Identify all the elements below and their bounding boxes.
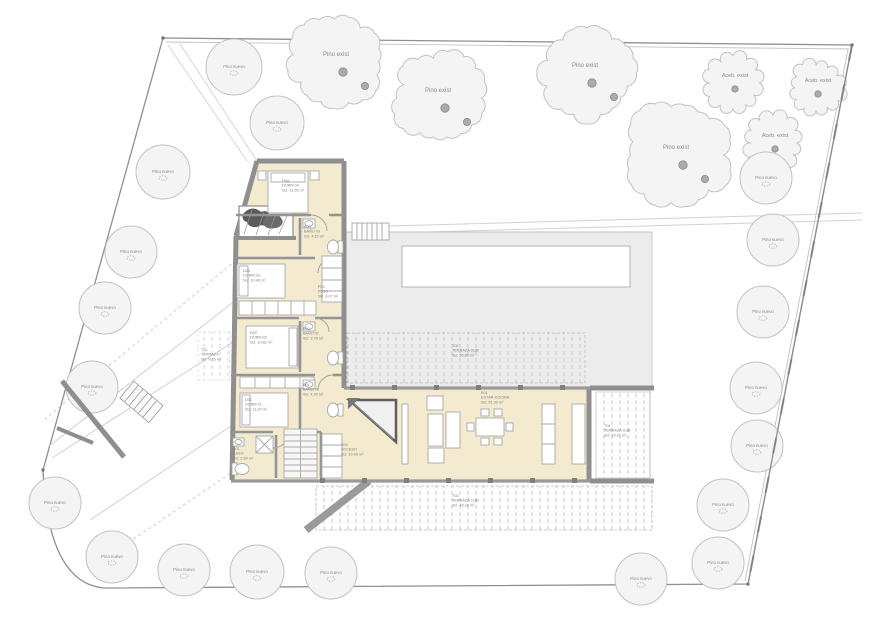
tree-trunk	[701, 175, 708, 182]
boundary-corner-marker	[161, 36, 164, 39]
tree-trunk	[732, 86, 738, 92]
covered-terrace-east	[596, 392, 650, 478]
new-pine-tree: Pino nuevo	[158, 544, 210, 596]
floor-plan-page: Pino existPino existPino existPino exist…	[0, 0, 880, 640]
pool	[402, 246, 630, 287]
new-pine-tree: Pino nuevo	[29, 477, 81, 529]
new-pine-tree: Pino nuevo	[79, 282, 131, 334]
stair-main	[284, 429, 317, 478]
tree-trunk	[772, 146, 778, 152]
new-pine-tree: Pino nuevo	[692, 537, 744, 589]
covered-terrace-south	[316, 486, 652, 530]
tree-trunk	[679, 161, 687, 169]
tree-trunk	[441, 104, 449, 112]
holly-tree: Aceb. exist	[703, 51, 764, 114]
new-pine-tree: Pino nuevo	[305, 547, 357, 599]
new-pine-tree: Pino nuevo	[66, 361, 118, 413]
existing-pine-tree: Pino exist	[627, 102, 731, 207]
new-pine-tree: Pino nuevo	[136, 145, 190, 199]
new-pine-tree: Pino nuevo	[737, 286, 789, 338]
exterior-stair	[120, 381, 163, 422]
existing-pine-tree: Pino exist	[286, 15, 381, 109]
bed	[246, 326, 298, 368]
new-pine-tree: Pino nuevo	[730, 362, 782, 414]
new-pine-tree: Pino nuevo	[206, 39, 262, 95]
site-boundary-inner-line-top	[166, 42, 849, 49]
tree-trunk	[463, 118, 470, 125]
tree-trunk	[361, 82, 368, 89]
new-pine-tree: Pino nuevo	[615, 553, 667, 605]
new-pine-tree: Pino nuevo	[697, 479, 749, 531]
stair-hall	[352, 223, 389, 240]
tree-trunk	[588, 79, 596, 87]
new-pine-tree: Pino nuevo	[105, 226, 157, 278]
new-pine-tree: Pino nuevo	[230, 545, 284, 599]
existing-pine-tree: Pino exist	[537, 26, 638, 125]
covered-terrace-north	[347, 333, 585, 383]
tree-trunk	[339, 68, 347, 76]
existing-pine-tree: Pino exist	[392, 50, 487, 140]
bed	[240, 393, 288, 427]
tree-trunk	[610, 93, 617, 100]
new-pine-tree: Pino nuevo	[747, 214, 799, 266]
holly-tree: Aceb. exist	[790, 58, 847, 116]
new-pine-tree: Pino nuevo	[250, 96, 304, 150]
new-pine-tree: Pino nuevo	[740, 152, 792, 204]
closet-row	[239, 301, 316, 315]
boundary-corner-marker	[41, 468, 44, 471]
floor-plan-drawing: Pino existPino existPino existPino exist…	[0, 0, 880, 640]
west-terrace-hatch	[198, 332, 230, 380]
tree-trunk	[815, 91, 821, 97]
bed	[237, 264, 285, 298]
new-pine-tree: Pino nuevo	[86, 531, 138, 583]
